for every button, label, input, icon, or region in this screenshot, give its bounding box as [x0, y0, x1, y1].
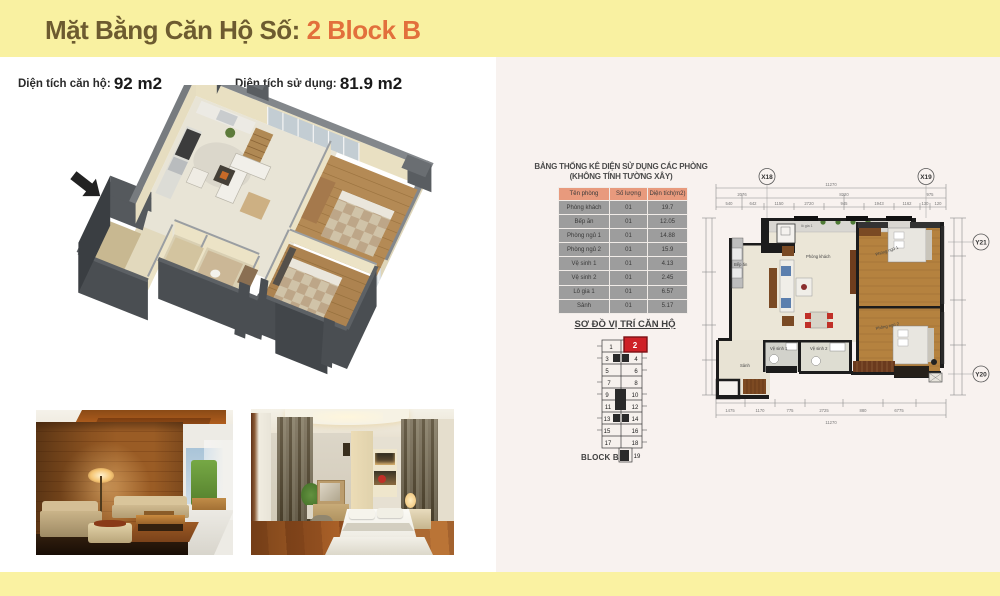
svg-text:X18: X18	[761, 174, 773, 181]
svg-text:6775: 6775	[894, 408, 904, 413]
svg-text:Bếp ăn: Bếp ăn	[734, 262, 748, 267]
svg-text:11: 11	[605, 405, 612, 411]
svg-text:1475: 1475	[725, 408, 735, 413]
svg-text:11270: 11270	[825, 420, 837, 425]
svg-text:13: 13	[604, 417, 611, 423]
svg-text:2725: 2725	[819, 408, 829, 413]
svg-text:2: 2	[633, 341, 638, 350]
svg-text:1170: 1170	[755, 408, 765, 413]
svg-text:2720: 2720	[804, 201, 814, 206]
svg-text:130: 130	[922, 201, 930, 206]
svg-text:Y20: Y20	[975, 372, 987, 379]
svg-text:14: 14	[632, 417, 639, 423]
svg-text:18: 18	[632, 441, 639, 447]
svg-text:17: 17	[605, 441, 612, 447]
svg-text:120: 120	[935, 201, 943, 206]
svg-text:945: 945	[841, 201, 849, 206]
svg-text:1162: 1162	[902, 201, 912, 206]
svg-text:Phòng khách: Phòng khách	[806, 254, 831, 259]
svg-text:540: 540	[726, 201, 734, 206]
svg-text:2076: 2076	[737, 192, 747, 197]
svg-text:10: 10	[632, 393, 639, 399]
svg-text:975: 975	[927, 192, 935, 197]
svg-text:1150: 1150	[774, 201, 784, 206]
svg-text:642: 642	[750, 201, 758, 206]
svg-text:775: 775	[787, 408, 795, 413]
svg-text:lô gia 1: lô gia 1	[801, 224, 813, 228]
svg-text:Sảnh: Sảnh	[740, 363, 750, 368]
svg-text:Y21: Y21	[975, 240, 987, 247]
svg-text:1943: 1943	[874, 201, 884, 206]
svg-text:16: 16	[632, 429, 639, 435]
svg-text:15: 15	[604, 429, 611, 435]
svg-text:12: 12	[632, 405, 639, 411]
svg-text:8220: 8220	[839, 192, 849, 197]
svg-text:Vệ sinh 2: Vệ sinh 2	[810, 346, 828, 351]
svg-text:19: 19	[634, 454, 641, 460]
svg-text:X19: X19	[920, 174, 932, 181]
svg-text:880: 880	[860, 408, 868, 413]
svg-text:Vệ sinh 1: Vệ sinh 1	[770, 346, 788, 351]
svg-text:11270: 11270	[825, 182, 837, 187]
